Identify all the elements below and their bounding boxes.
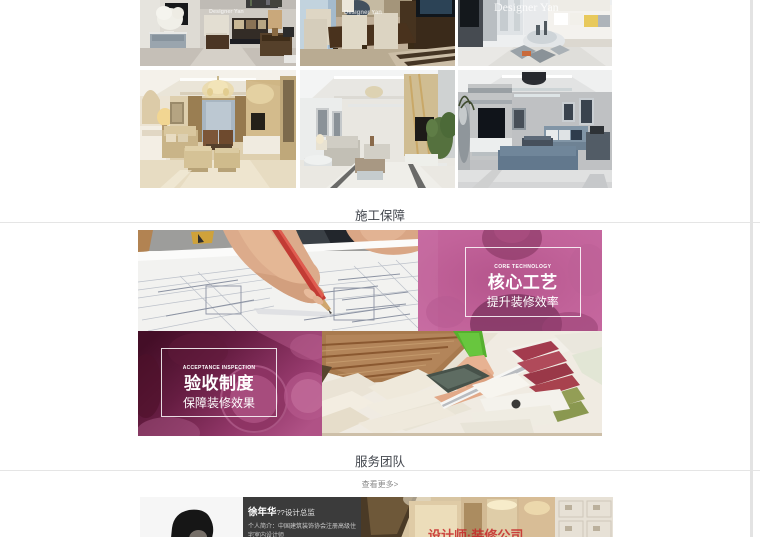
svg-text:Designer Yan: Designer Yan	[344, 10, 382, 16]
svg-text:Designer Yan: Designer Yan	[209, 9, 244, 15]
svg-text:Designer Yan: Designer Yan	[494, 0, 559, 14]
svg-text:设计师·装修公司: 设计师·装修公司	[428, 528, 523, 537]
